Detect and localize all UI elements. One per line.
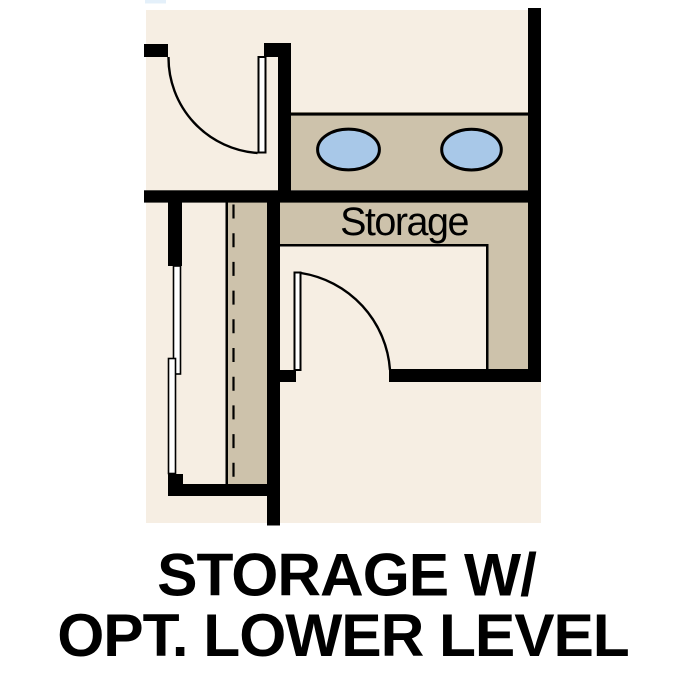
svg-text:Storage: Storage xyxy=(340,200,468,244)
svg-text:OPT. LOWER LEVEL: OPT. LOWER LEVEL xyxy=(57,601,629,669)
svg-text:STORAGE W/: STORAGE W/ xyxy=(157,541,537,609)
